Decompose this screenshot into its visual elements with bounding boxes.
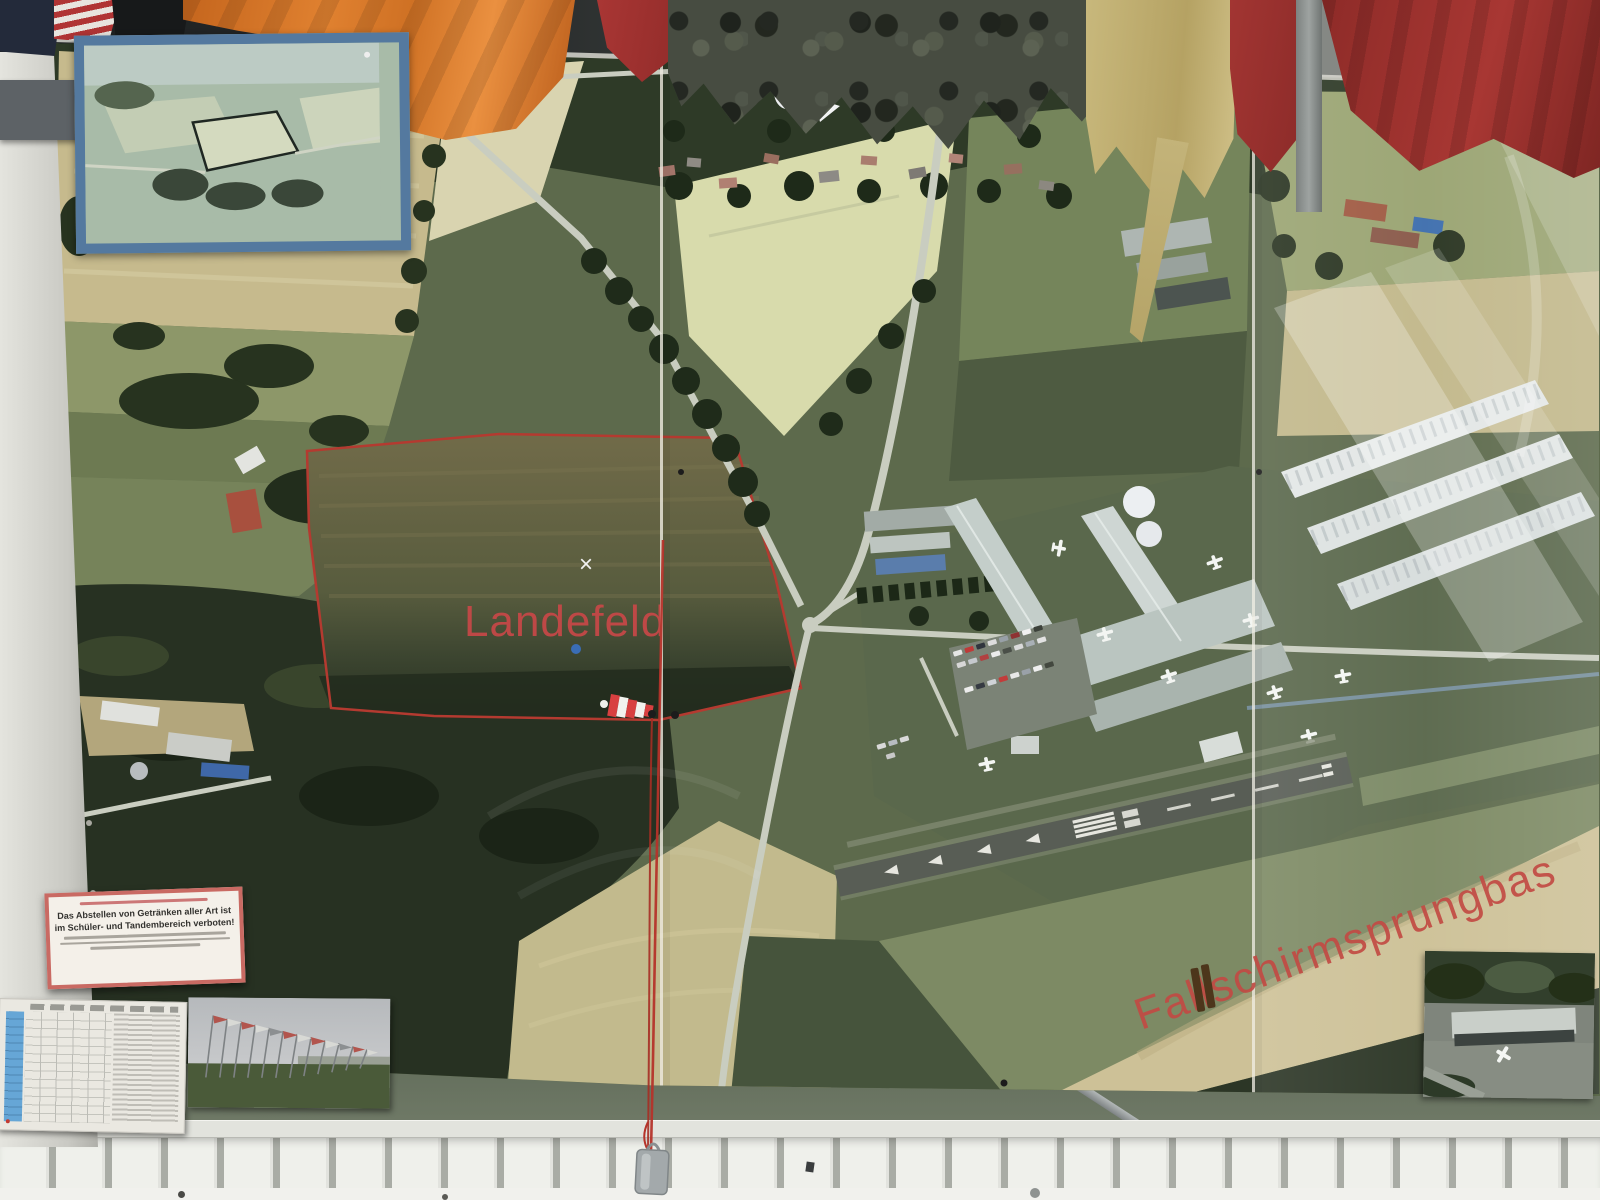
windsock-row-photo — [188, 997, 391, 1108]
wall-base-strip — [0, 1188, 1600, 1200]
table-text-column — [112, 1013, 180, 1122]
wall-screw — [1030, 1188, 1040, 1198]
wall-screw — [178, 1191, 185, 1198]
sign-small-title — [79, 898, 208, 905]
inset-overview-photo — [74, 32, 411, 253]
ribbed-wall-panel — [0, 1138, 1600, 1190]
sign-fineprint-bar — [90, 943, 200, 949]
warning-sign: Das Abstellen von Getränken aller Art is… — [44, 887, 245, 990]
hangar-photo — [1423, 951, 1595, 1099]
table-blue-column — [4, 1011, 24, 1121]
wall-pipe — [1296, 0, 1322, 212]
table-grid — [24, 1012, 112, 1124]
x-marker-icon: × — [579, 551, 593, 578]
us-flag-fragment — [0, 0, 62, 56]
wall-rail — [0, 1120, 1600, 1139]
trim-screw — [86, 820, 92, 826]
panel-seam-left — [660, 42, 670, 1092]
info-table-sheet — [0, 998, 187, 1134]
photo-of-aerial-map-wall: Landefeld × — [0, 0, 1600, 1200]
landefeld-field — [307, 434, 801, 720]
landing-field-label: Landefeld — [464, 597, 666, 646]
blue-dot-marker — [571, 644, 581, 654]
table-red-mark — [6, 1119, 10, 1123]
wall-screw — [442, 1194, 448, 1200]
